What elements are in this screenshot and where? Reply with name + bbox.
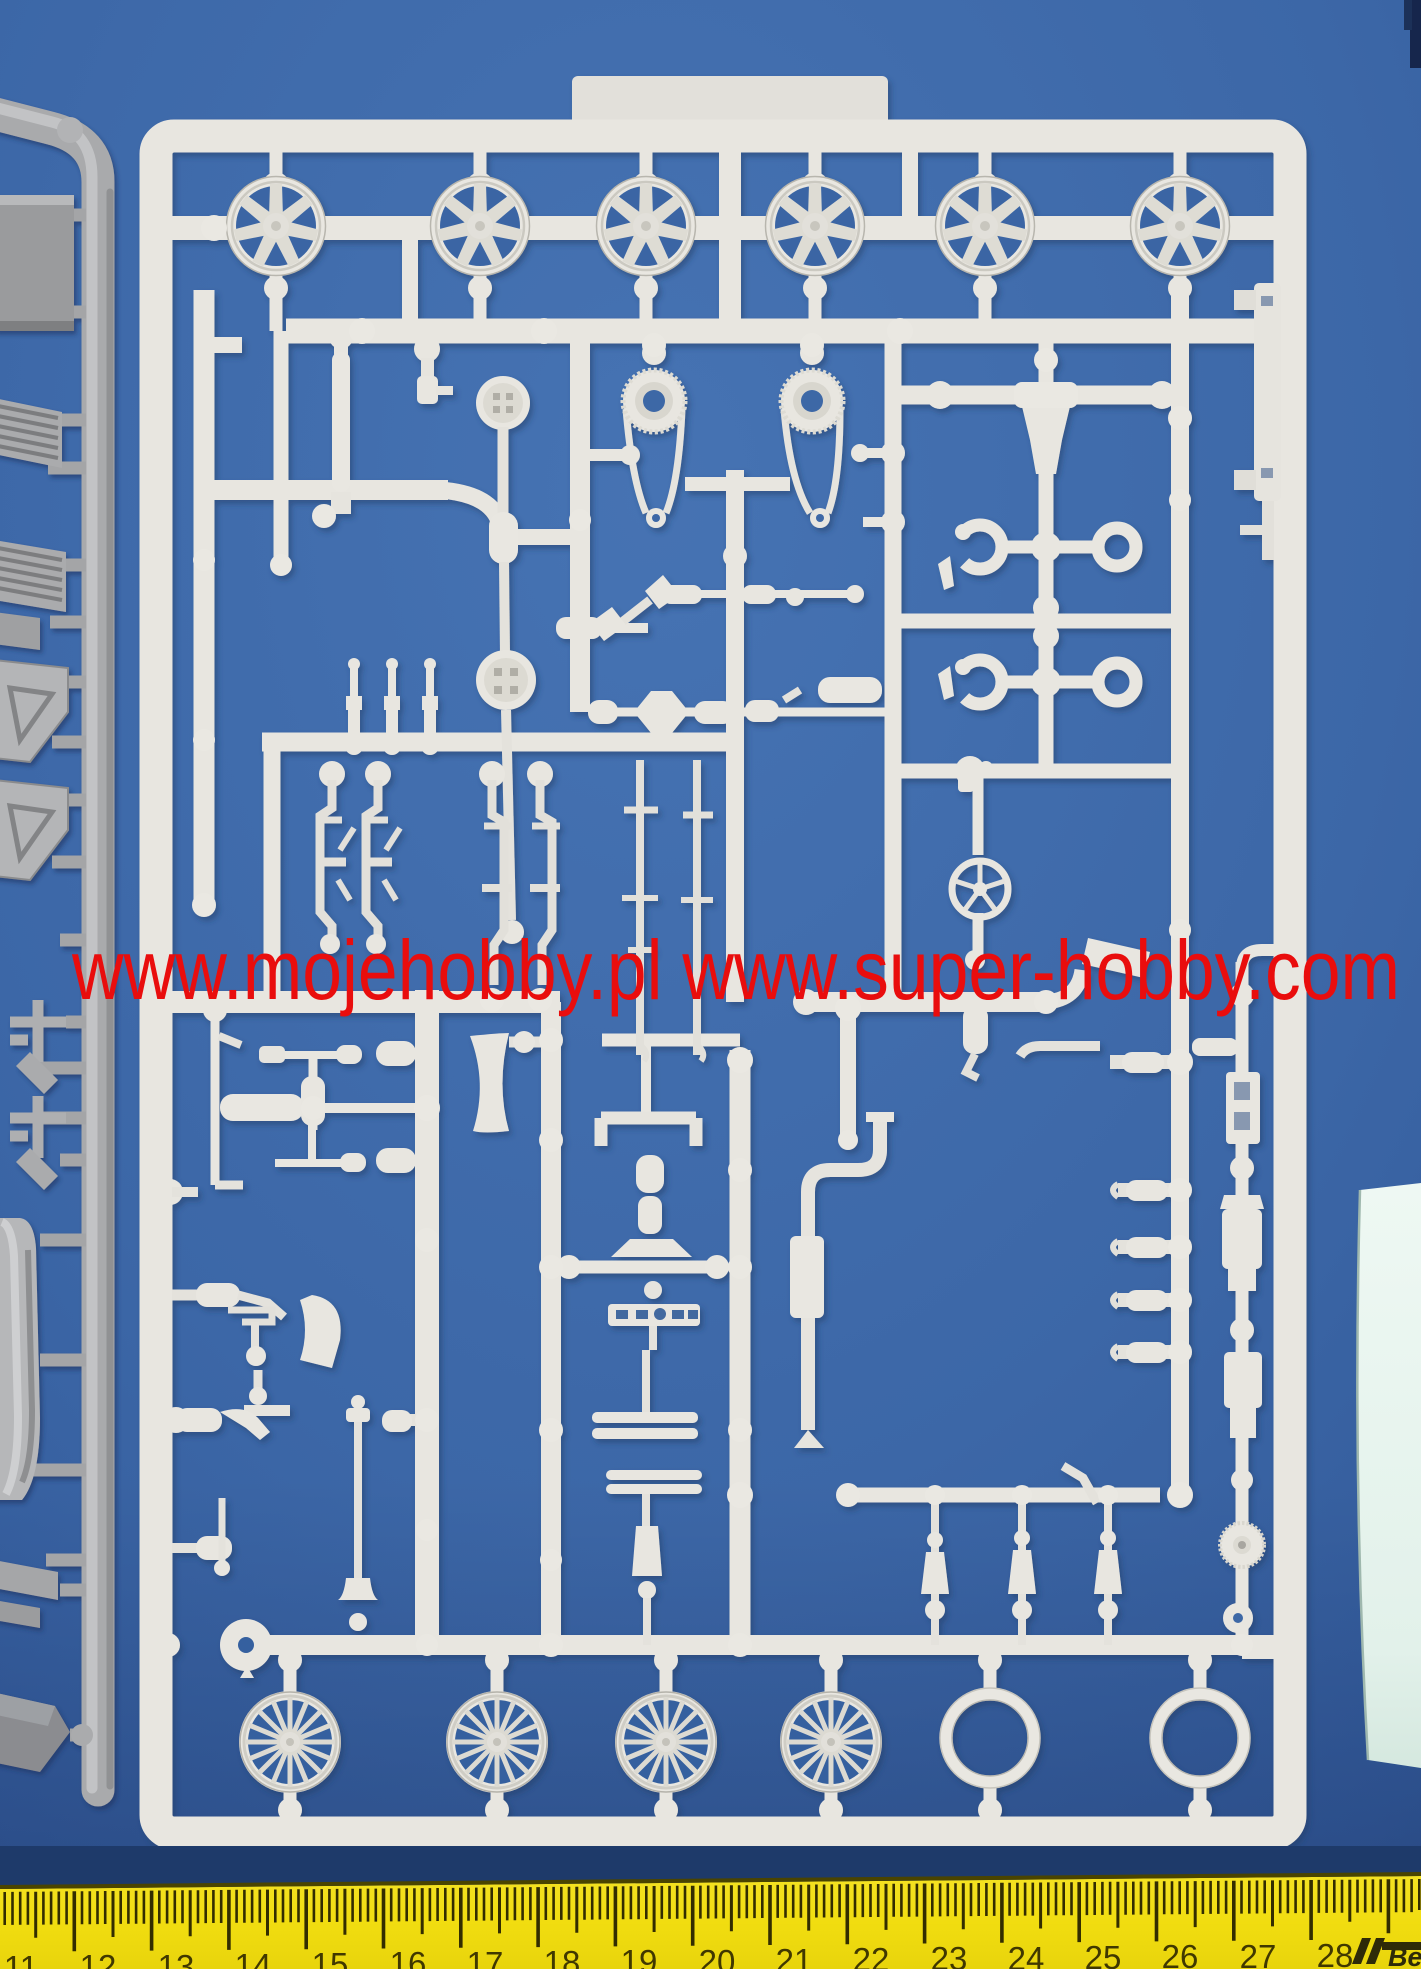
svg-text:Beni: Beni — [1388, 1942, 1421, 1969]
svg-text:20: 20 — [699, 1943, 736, 1969]
svg-text:26: 26 — [1162, 1938, 1199, 1969]
svg-text:17: 17 — [467, 1945, 504, 1969]
svg-text:11: 11 — [4, 1949, 38, 1969]
svg-text:13: 13 — [158, 1948, 195, 1969]
svg-text:28: 28 — [1317, 1937, 1354, 1969]
svg-text:18: 18 — [544, 1944, 581, 1969]
svg-text:www.mojehobby.pl www.super-hob: www.mojehobby.pl www.super-hobby.com — [71, 923, 1400, 1017]
svg-text:24: 24 — [1008, 1940, 1045, 1969]
svg-text:22: 22 — [853, 1941, 890, 1969]
svg-text:25: 25 — [1085, 1939, 1122, 1969]
svg-text:23: 23 — [931, 1940, 968, 1969]
svg-text:21: 21 — [776, 1942, 813, 1969]
svg-text:12: 12 — [80, 1948, 117, 1969]
svg-text:27: 27 — [1240, 1938, 1277, 1969]
svg-text:16: 16 — [390, 1945, 427, 1969]
svg-text:15: 15 — [312, 1946, 349, 1969]
svg-text:14: 14 — [235, 1947, 272, 1969]
svg-text:19: 19 — [621, 1943, 658, 1969]
